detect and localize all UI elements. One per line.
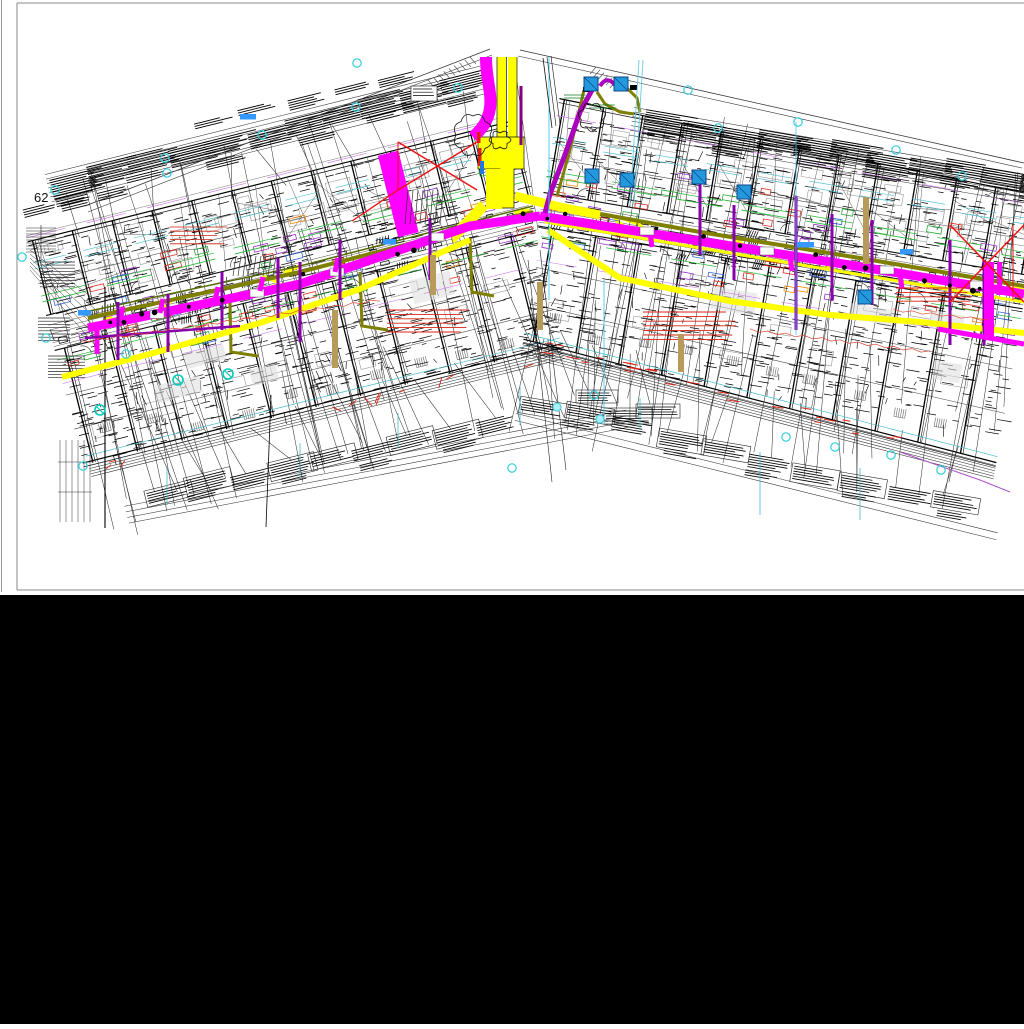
- svg-text:62: 62: [34, 190, 48, 205]
